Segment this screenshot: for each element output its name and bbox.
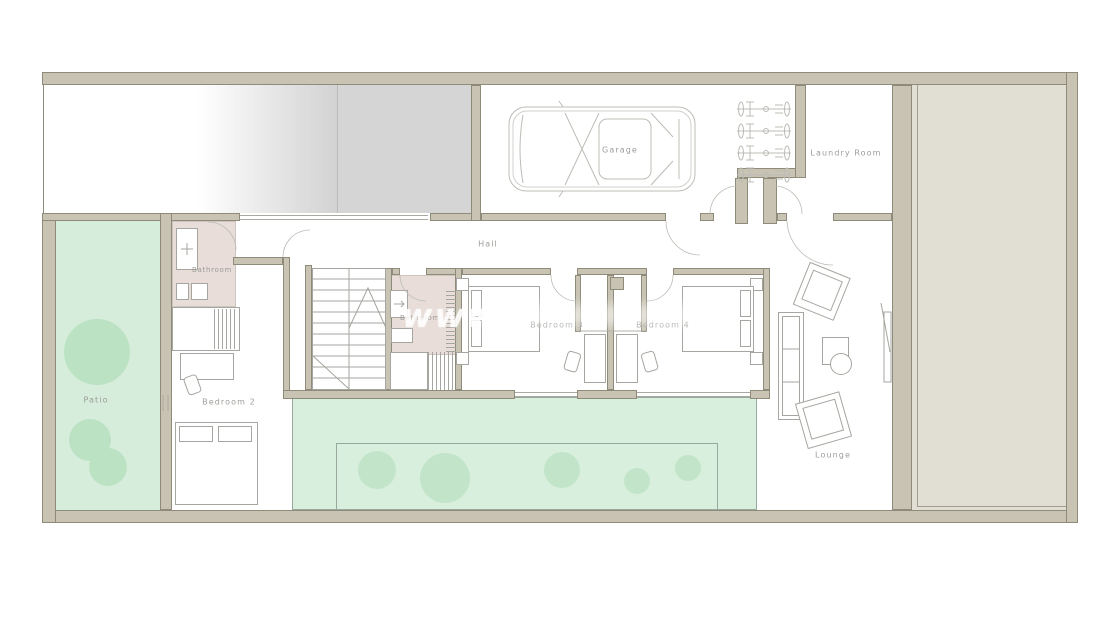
stairs-icon [312,268,386,390]
floor-plan-canvas: Garage Laundry Room Hall Bathroom Bathro… [0,0,1110,626]
room-label-hall: Hall [478,240,498,249]
room-label-bedroom4: Bedroom 4 [636,321,690,330]
room-label-bedroom2: Bedroom 2 [202,398,256,407]
plan-linework [0,0,1110,626]
room-label-bathroom1: Bathroom [192,266,232,274]
chair-icon [183,351,658,396]
tv-icon [881,303,891,382]
side-table-icon [823,338,852,375]
door-arcs [208,186,833,301]
bicycle-icon [733,100,795,118]
room-label-bedroom3: Bedroom 3 [530,321,584,330]
armchair-icon [793,262,850,320]
bicycle-icon [733,122,795,140]
room-label-patio: Patio [83,396,108,405]
bicycle-icon [733,144,795,162]
room-label-laundry: Laundry Room [810,149,881,158]
room-label-garage: Garage [602,146,638,155]
bicycle-icon [733,166,795,184]
window-lines [163,216,750,412]
room-label-bathroom2: Bathroom [400,314,440,322]
room-label-lounge: Lounge [815,451,851,460]
